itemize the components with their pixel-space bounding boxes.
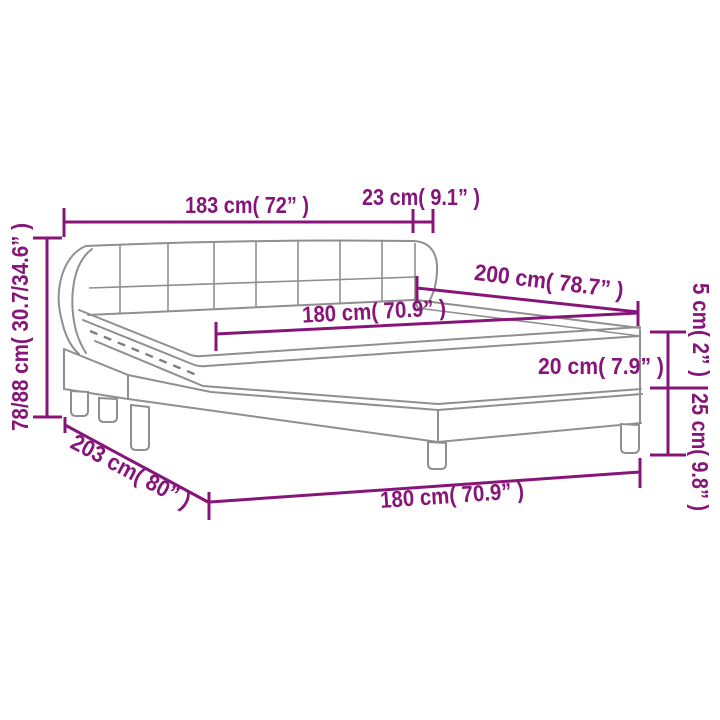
- dim-base-height-label: 25 cm( 9.8” ): [687, 393, 713, 511]
- leg-rear-left: [71, 391, 88, 416]
- bed-dimension-svg: 183 cm( 72” ) 23 cm( 9.1” ) 200 cm( 78.7…: [0, 0, 720, 720]
- headboard-top-edge: [86, 241, 414, 246]
- leg-front-left-corner: [99, 398, 117, 422]
- dim-headboard-overhang-label: 23 cm( 9.1” ): [362, 184, 480, 210]
- dimension-diagram: 183 cm( 72” ) 23 cm( 9.1” ) 200 cm( 78.7…: [0, 0, 720, 720]
- mattress-piping-dashed: [90, 331, 199, 376]
- headboard-left-roll-inner: [72, 249, 92, 353]
- dim-mattress-thickness-label: 20 cm( 7.9” ): [538, 353, 664, 379]
- leg-front-middle: [428, 442, 446, 469]
- dim-total-height-line: [33, 238, 62, 417]
- tufting-seam-horizontal: [89, 277, 415, 288]
- dim-headboard-width-label: 183 cm( 72” ): [185, 192, 309, 218]
- dimension-annotations: 183 cm( 72” ) 23 cm( 9.1” ) 200 cm( 78.7…: [7, 184, 714, 520]
- leg-front-right: [621, 424, 639, 453]
- dim-total-height-label: 78/88 cm( 30.7/34.6” ): [7, 223, 33, 431]
- dim-topper-thickness-label: 5 cm( 2” ): [688, 283, 714, 377]
- leg-front-left: [131, 405, 149, 450]
- dim-frame-width-label: 180 cm( 70.9” ): [379, 477, 524, 513]
